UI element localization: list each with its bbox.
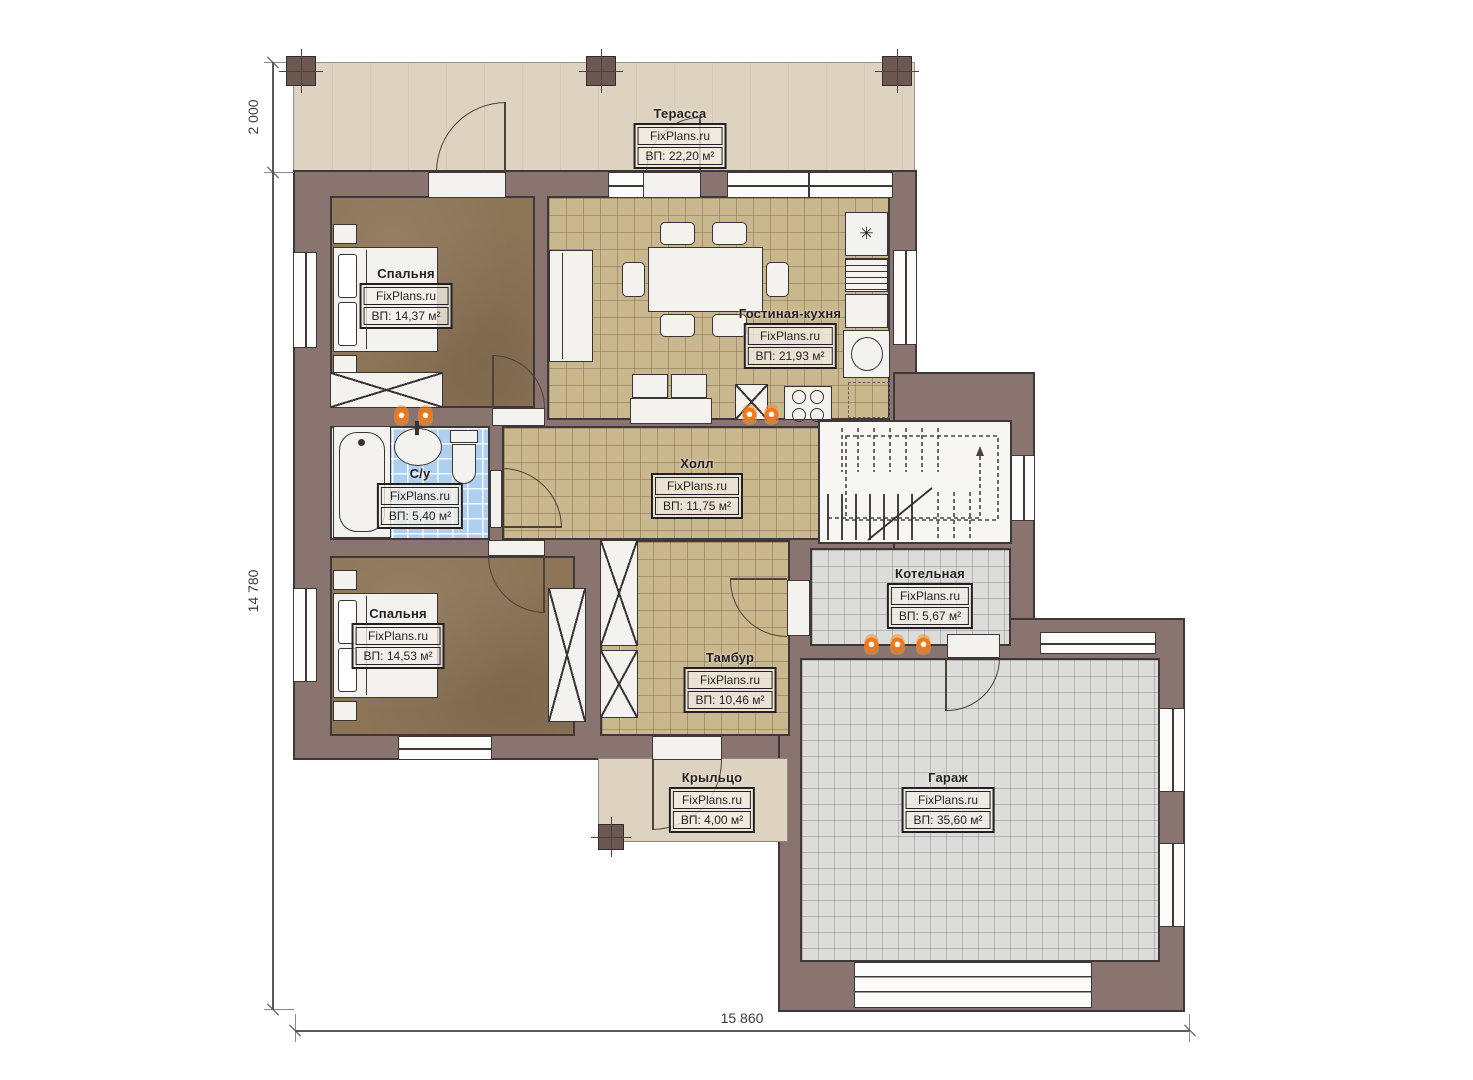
door-gap-vestibule-boiler <box>787 580 810 636</box>
terrace-column <box>286 56 316 86</box>
brand-label: FixPlans.ru <box>906 791 991 809</box>
chair-icon <box>766 262 789 297</box>
brand-label: FixPlans.ru <box>638 127 723 145</box>
nightstand-icon <box>333 224 357 244</box>
sofa-icon <box>549 250 593 362</box>
room-label-bedroom-1: Спальня FixPlans.ru ВП: 14,37 м² <box>360 266 453 329</box>
door-gap-bathroom <box>490 470 502 528</box>
door-leaf <box>492 355 494 408</box>
brand-label: FixPlans.ru <box>364 287 449 305</box>
room-info-box: FixPlans.ru ВП: 14,37 м² <box>360 283 453 329</box>
room-floor-stairs <box>818 420 1012 544</box>
wardrobe-icon <box>600 650 638 718</box>
kitchen-sink-icon <box>843 330 890 378</box>
door-leaf <box>504 102 506 172</box>
brand-label: FixPlans.ru <box>688 671 773 689</box>
door-gap-front-entrance <box>652 736 722 760</box>
dimension-line-height <box>272 172 274 1010</box>
brand-label: FixPlans.ru <box>655 477 739 495</box>
floor-plan-canvas: ✳ Терасса FixPlans.ru ВП: 22,20 м <box>0 0 1473 1080</box>
chair-icon <box>712 222 747 245</box>
room-name: Спальня <box>369 606 427 621</box>
room-info-box: FixPlans.ru ВП: 35,60 м² <box>902 787 995 833</box>
radiator-icon <box>394 405 409 428</box>
room-label-boiler: Котельная FixPlans.ru ВП: 5,67 м² <box>887 566 973 629</box>
room-label-terrace: Терасса FixPlans.ru ВП: 22,20 м² <box>634 106 727 169</box>
area-label: ВП: 22,20 м² <box>638 147 723 165</box>
door-leaf <box>543 556 545 613</box>
kitchen-cabinet-icon <box>845 294 888 328</box>
room-info-box: FixPlans.ru ВП: 11,75 м² <box>651 473 743 519</box>
room-name: С/у <box>410 466 431 481</box>
room-label-bathroom: С/у FixPlans.ru ВП: 5,40 м² <box>377 466 463 529</box>
radiator-icon <box>742 404 757 427</box>
room-name: Крыльцо <box>682 770 743 785</box>
room-name: Котельная <box>895 566 965 581</box>
door-leaf-panel <box>632 374 668 398</box>
toilet-tank-icon <box>450 430 478 443</box>
room-info-box: FixPlans.ru ВП: 5,40 м² <box>377 483 463 529</box>
room-name: Гараж <box>928 770 968 785</box>
area-label: ВП: 35,60 м² <box>906 811 991 829</box>
room-label-hall: Холл FixPlans.ru ВП: 11,75 м² <box>651 456 743 519</box>
fridge-icon: ✳ <box>845 212 888 256</box>
radiator-icon <box>864 634 879 657</box>
terrace-column <box>882 56 912 86</box>
room-name: Терасса <box>654 106 707 121</box>
dimension-line-width <box>295 1030 1190 1032</box>
chair-icon <box>660 222 695 245</box>
window-bedroom-2-bottom <box>398 736 492 760</box>
room-label-vestibule: Тамбур FixPlans.ru ВП: 10,46 м² <box>684 650 777 713</box>
stove-icon <box>784 386 832 420</box>
door-leaf-panel <box>671 374 707 398</box>
window-stairs <box>1011 455 1035 521</box>
room-label-living-kitchen: Гостиная-кухня FixPlans.ru ВП: 21,93 м² <box>739 306 841 369</box>
room-info-box: FixPlans.ru ВП: 5,67 м² <box>887 583 973 629</box>
door-gap-bedroom-1 <box>492 408 545 426</box>
door-leaf <box>945 658 947 711</box>
window-garage-top <box>1040 632 1156 654</box>
window-kitchen-terrace-right <box>809 172 893 198</box>
dimension-extension <box>264 172 294 173</box>
dimension-label-terrace-depth: 2 000 <box>245 99 261 134</box>
dimension-line-terrace <box>272 62 274 172</box>
door-gap-bedroom1-terrace <box>428 172 506 198</box>
room-name: Холл <box>680 456 713 471</box>
nightstand-icon <box>333 570 357 590</box>
wardrobe-icon <box>330 372 443 408</box>
chair-icon <box>660 314 695 337</box>
area-label: ВП: 5,40 м² <box>381 507 459 525</box>
room-label-porch: Крыльцо FixPlans.ru ВП: 4,00 м² <box>669 770 755 833</box>
area-label: ВП: 10,46 м² <box>688 691 773 709</box>
brand-label: FixPlans.ru <box>356 627 441 645</box>
window-garage-right-1 <box>1159 708 1185 792</box>
radiator-icon <box>916 634 931 657</box>
room-name: Тамбур <box>706 650 754 665</box>
area-label: ВП: 21,93 м² <box>748 347 833 365</box>
dimension-extension <box>264 1009 294 1010</box>
porch-column <box>598 824 624 850</box>
door-gap-bedroom-2 <box>488 540 545 556</box>
area-label: ВП: 5,67 м² <box>891 607 969 625</box>
wardrobe-icon <box>600 540 638 646</box>
dining-table-icon <box>648 247 763 312</box>
brand-label: FixPlans.ru <box>748 327 833 345</box>
dimension-label-house-height: 14 780 <box>245 570 261 613</box>
room-info-box: FixPlans.ru ВП: 10,46 м² <box>684 667 777 713</box>
garage-door <box>854 962 1092 1008</box>
bathroom-sink-icon <box>394 428 442 466</box>
counter-outline <box>848 382 890 418</box>
fridge-symbol: ✳ <box>859 224 873 244</box>
brand-label: FixPlans.ru <box>891 587 969 605</box>
dimension-label-house-width: 15 860 <box>721 1010 764 1026</box>
room-label-garage: Гараж FixPlans.ru ВП: 35,60 м² <box>902 770 995 833</box>
dimension-extension <box>295 1014 296 1042</box>
brand-label: FixPlans.ru <box>381 487 459 505</box>
door-leaf <box>652 760 654 830</box>
window-kitchen-top <box>608 172 644 198</box>
chair-icon <box>622 262 645 297</box>
door-leaf <box>502 526 562 528</box>
area-label: ВП: 14,53 м² <box>356 647 441 665</box>
room-info-box: FixPlans.ru ВП: 4,00 м² <box>669 787 755 833</box>
room-info-box: FixPlans.ru ВП: 14,53 м² <box>352 623 445 669</box>
radiator-icon <box>764 404 779 427</box>
room-info-box: FixPlans.ru ВП: 21,93 м² <box>744 323 837 369</box>
area-label: ВП: 11,75 м² <box>655 497 739 515</box>
radiator-icon <box>890 634 905 657</box>
brand-label: FixPlans.ru <box>673 791 751 809</box>
window-garage-right-2 <box>1159 843 1185 927</box>
door-gap-hall-kitchen <box>630 398 712 424</box>
radiator-icon <box>418 405 433 428</box>
room-name: Гостиная-кухня <box>739 306 841 321</box>
window-kitchen-right <box>893 250 917 345</box>
area-label: ВП: 14,37 м² <box>364 307 449 325</box>
window-kitchen-terrace-left <box>727 172 809 198</box>
window-bedroom-2 <box>293 588 317 682</box>
wardrobe-icon <box>548 588 586 722</box>
door-gap-kitchen-terrace <box>643 172 701 198</box>
terrace-column <box>586 56 616 86</box>
nightstand-icon <box>333 701 357 721</box>
room-name: Спальня <box>377 266 435 281</box>
staircase-icon <box>820 422 1010 542</box>
door-gap-boiler-garage <box>947 634 1000 658</box>
window-bedroom-1 <box>293 252 317 348</box>
area-label: ВП: 4,00 м² <box>673 811 751 829</box>
room-info-box: FixPlans.ru ВП: 22,20 м² <box>634 123 727 169</box>
door-leaf <box>730 578 787 580</box>
kitchen-cabinet-icon <box>845 258 888 292</box>
room-label-bedroom-2: Спальня FixPlans.ru ВП: 14,53 м² <box>352 606 445 669</box>
